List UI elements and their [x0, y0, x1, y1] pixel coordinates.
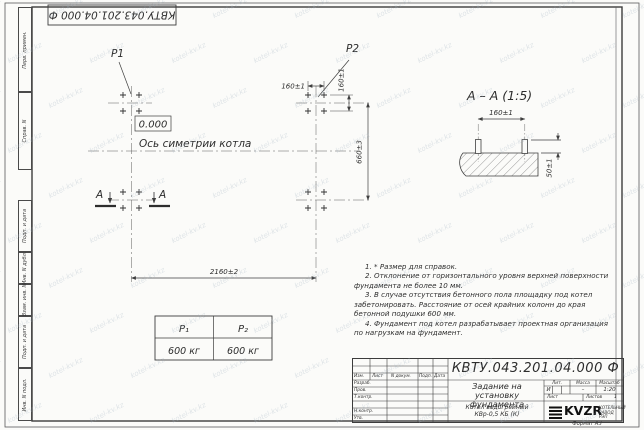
dim-160-vertical-label: 160±1: [338, 68, 346, 92]
margin-label: Справ. N: [22, 120, 28, 143]
tb-row-tkontr: Т.контр.: [354, 395, 373, 400]
anchor-bolt-right: [522, 140, 528, 154]
plan-dimension-lines: [132, 86, 369, 278]
plan-centerlines: [88, 86, 372, 282]
p1-label: P1: [111, 48, 124, 60]
load-table: P₁ P₂ 600 кг 600 кг: [155, 316, 272, 360]
margin-cell-perv-primen: Перв. примен.: [18, 7, 32, 92]
load-table-value-1: 600 кг: [168, 346, 201, 357]
product-name: Котел водогрейный КВр-0,5 КБ (К): [461, 405, 533, 418]
note-3: 3. В случае отсутствия бетонного пола пл…: [354, 290, 616, 318]
section-letter-right: А: [158, 189, 166, 201]
tb-scale-label: Масштаб: [596, 381, 623, 386]
tb-row-razrab: Разраб.: [354, 381, 371, 386]
margin-cell-vzam-inv: Взам. инв. N: [18, 284, 32, 316]
format-label: Формат А3: [552, 421, 622, 427]
margin-cell-inv-podl: Инв. N подл.: [18, 368, 32, 421]
anchor-bolt-left: [476, 140, 482, 154]
margin-label: Перв. примен.: [22, 31, 28, 69]
note-2: 2. Отклонение от горизонтального уровня …: [354, 271, 616, 290]
section-title: А – А (1:5): [466, 88, 532, 103]
tb-col-izm: Изм.: [354, 374, 364, 379]
dim-160-horizontal-label: 160±1: [281, 83, 305, 91]
dim-2160-label: 2160±2: [210, 268, 239, 276]
tb-sheets-value: 1: [614, 395, 617, 400]
elevation-value: 0.000: [139, 120, 168, 131]
section-view: А – А (1:5) 160±1 50±1: [460, 88, 561, 178]
tb-lit-value: И: [544, 387, 553, 393]
tb-sheet-label: Лист: [547, 395, 558, 400]
margin-cell-inv-dubl: Инв. N дубл.: [18, 252, 32, 284]
load-table-value-2: 600 кг: [227, 346, 260, 357]
margin-cell-podp-data-1: Подп. и дата: [18, 200, 32, 252]
doc-number: КВТУ.043.201.04.000 Ф: [448, 361, 623, 376]
tb-col-ndocum: N докум.: [391, 374, 411, 379]
tb-row-prov: Пров.: [354, 388, 367, 393]
note-1: 1. * Размер для справок.: [354, 262, 616, 271]
load-table-header-2: P₂: [238, 324, 248, 335]
title-block: Изм. Лист N докум. Подп. Дата Разраб. Пр…: [352, 358, 624, 423]
tb-col-podp: Подп.: [419, 374, 432, 379]
note-4: 4. Фундамент под котел разрабатывает про…: [354, 319, 616, 338]
company-name: КОТЕЛЬНЫЙ ЗАВОД РЭП: [599, 406, 623, 420]
section-letter-left: А: [95, 189, 103, 201]
concrete-pad: [460, 153, 538, 176]
axis-of-symmetry-label: Ось симетрии котла: [139, 138, 251, 150]
top-stamp-text: КВТУ.043.201.04.000 Ф: [49, 9, 176, 21]
tb-row-nkontr: Н.контр.: [354, 409, 373, 414]
kvzr-logo-icon: [549, 405, 562, 419]
elevation-mark: 0.000: [135, 116, 171, 131]
dim-50-section-label: 50±1: [546, 158, 554, 177]
margin-cell-sprav-n: Справ. N: [18, 92, 32, 170]
anchor-bolt-crosses: [120, 92, 327, 211]
dim-160-section-label: 160±1: [489, 109, 513, 117]
plan-extension-lines: [308, 81, 353, 111]
dim-660-label: 660±3: [356, 140, 364, 164]
margin-label: Подп. и дата: [22, 325, 28, 359]
tb-mass-label: Масса: [570, 381, 596, 386]
drawing-sheet: КВТУ.043.201.04.000 Ф: [0, 0, 644, 430]
p1-leader: [119, 62, 131, 94]
kvzr-logo: KVZR: [564, 403, 602, 418]
tb-scale-value: 1:20: [596, 387, 623, 393]
margin-label: Подп. и дата: [22, 209, 28, 243]
plan-view: P1 P2 2160±2 660±3 160±1 160±1 А А: [88, 43, 372, 282]
tb-col-data: Дата: [434, 374, 445, 379]
margin-cell-podp-data-2: Подп. и дата: [18, 316, 32, 368]
tb-row-utv: Утв.: [354, 416, 363, 421]
top-stamp: КВТУ.043.201.04.000 Ф: [48, 5, 176, 25]
notes: 1. * Размер для справок. 2. Отклонение о…: [354, 262, 616, 337]
margin-label: Инв. N подл.: [22, 378, 28, 411]
tb-lit-label: Лит.: [544, 381, 570, 386]
tb-sheets-label: Листов: [586, 395, 602, 400]
tb-mass-value: –: [570, 387, 596, 393]
margin-label: Взам. инв. N: [22, 284, 28, 317]
p2-label: P2: [346, 43, 359, 55]
tb-col-list: Лист: [372, 374, 383, 379]
margin-label: Инв. N дубл.: [22, 252, 28, 285]
load-table-header-1: P₁: [179, 324, 189, 335]
